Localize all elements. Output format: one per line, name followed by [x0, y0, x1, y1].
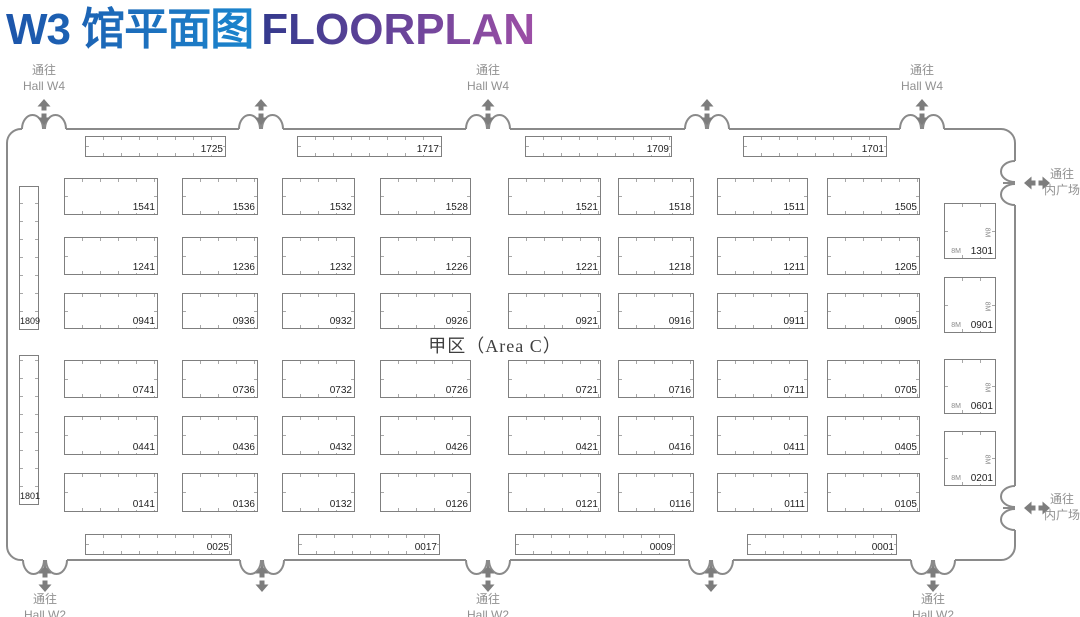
booth-number: 1701 — [860, 144, 884, 155]
exit-label-hall-w2: 通往Hall W2 — [893, 592, 973, 617]
exit-label-hall-w2: 通往Hall W2 — [5, 592, 85, 617]
booth-number: 1717 — [415, 144, 439, 155]
booth-1725: 1725 — [85, 136, 226, 157]
exit-label-line: 通往 — [893, 592, 973, 608]
booth-1236: 1236 — [182, 237, 258, 275]
double-arrow-vertical-icon — [700, 99, 714, 125]
booth-0916: 0916 — [618, 293, 694, 329]
exit-label-inner-plaza: 通往内广场 — [1022, 492, 1080, 523]
booth-number: 0721 — [574, 385, 598, 396]
booth-0601: 06018M8M — [944, 359, 996, 414]
booth-number: 0411 — [781, 442, 805, 453]
booth-number: 0932 — [328, 316, 352, 327]
booth-number: 1232 — [328, 262, 352, 273]
booth-0921: 0921 — [508, 293, 601, 329]
booth-0126: 0126 — [380, 473, 471, 512]
floorplan-page: W3 馆平面图FLOORPLAN 甲区（Area C） 154115361532… — [0, 0, 1080, 617]
exit-label-line: Hall W4 — [882, 79, 962, 95]
booth-1809: 1809 — [19, 186, 39, 330]
booth-number: 0201 — [969, 473, 993, 484]
booth-number: 1205 — [893, 262, 917, 273]
booth-number: 0736 — [231, 385, 255, 396]
booth-0416: 0416 — [618, 416, 694, 455]
booth-0736: 0736 — [182, 360, 258, 398]
dimension-label: 8M — [984, 383, 991, 393]
booth-0901: 09018M8M — [944, 277, 996, 333]
booth-1221: 1221 — [508, 237, 601, 275]
exit-label-line: 通往 — [4, 63, 84, 79]
booth-number: 0116 — [667, 499, 691, 510]
booth-number: 1236 — [231, 262, 255, 273]
exit-label-line: Hall W2 — [5, 608, 85, 617]
exit-label-line: 通往 — [1022, 167, 1080, 183]
area-label: 甲区（Area C） — [400, 332, 590, 358]
booth-number: 0905 — [893, 316, 917, 327]
double-arrow-vertical-icon — [704, 566, 718, 592]
booth-number: 1505 — [893, 202, 917, 213]
booth-0932: 0932 — [282, 293, 355, 329]
booth-0136: 0136 — [182, 473, 258, 512]
booth-1518: 1518 — [618, 178, 694, 215]
booth-0705: 0705 — [827, 360, 920, 398]
exit-label-line: 通往 — [1022, 492, 1080, 508]
booth-1717: 1717 — [297, 136, 442, 157]
booth-number: 1528 — [444, 202, 468, 213]
exit-label-line: Hall W2 — [893, 608, 973, 617]
booth-number: 0105 — [893, 499, 917, 510]
booth-1301: 13018M8M — [944, 203, 996, 259]
booth-number: 1709 — [645, 144, 669, 155]
double-arrow-vertical-icon — [254, 99, 268, 125]
booth-number: 1218 — [667, 262, 691, 273]
exit-label-line: Hall W4 — [4, 79, 84, 95]
booth-0936: 0936 — [182, 293, 258, 329]
double-arrow-vertical-icon — [926, 566, 940, 592]
booth-0432: 0432 — [282, 416, 355, 455]
booth-1226: 1226 — [380, 237, 471, 275]
booth-0905: 0905 — [827, 293, 920, 329]
dimension-label: 8M — [951, 248, 961, 255]
booth-number: 1521 — [574, 202, 598, 213]
booth-number: 0009 — [648, 542, 672, 553]
booth-number: 0426 — [444, 442, 468, 453]
booth-number: 0416 — [667, 442, 691, 453]
booth-number: 0741 — [131, 385, 155, 396]
booth-number: 0136 — [231, 499, 255, 510]
exit-label-inner-plaza: 通往内广场 — [1022, 167, 1080, 198]
booth-number: 0436 — [231, 442, 255, 453]
booth-1709: 1709 — [525, 136, 672, 157]
floorplan: 甲区（Area C） 15411536153215281521151815111… — [0, 0, 1080, 617]
booth-0132: 0132 — [282, 473, 355, 512]
booth-0732: 0732 — [282, 360, 355, 398]
booth-number: 0132 — [328, 499, 352, 510]
booth-0405: 0405 — [827, 416, 920, 455]
dimension-label: 8M — [951, 475, 961, 482]
booth-0411: 0411 — [717, 416, 808, 455]
dimension-label: 8M — [984, 455, 991, 465]
dimension-label: 8M — [951, 403, 961, 410]
booth-number: 0705 — [893, 385, 917, 396]
booth-0716: 0716 — [618, 360, 694, 398]
booth-number: 0421 — [574, 442, 598, 453]
booth-number: 0921 — [574, 316, 598, 327]
booth-number: 0941 — [131, 316, 155, 327]
booth-0441: 0441 — [64, 416, 158, 455]
booth-1541: 1541 — [64, 178, 158, 215]
booth-number: 0911 — [781, 316, 805, 327]
booth-1701: 1701 — [743, 136, 887, 157]
exit-label-hall-w4: 通往Hall W4 — [882, 63, 962, 94]
booth-number: 1532 — [328, 202, 352, 213]
exit-label-line: Hall W4 — [448, 79, 528, 95]
booth-1218: 1218 — [618, 237, 694, 275]
dimension-label: 8M — [984, 301, 991, 311]
booth-number: 0001 — [870, 542, 894, 553]
booth-1241: 1241 — [64, 237, 158, 275]
exit-label-line: 内广场 — [1022, 183, 1080, 199]
booth-number: 0916 — [667, 316, 691, 327]
booth-1528: 1528 — [380, 178, 471, 215]
booth-number: 0732 — [328, 385, 352, 396]
booth-number: 1801 — [20, 492, 38, 502]
exit-label-line: Hall W2 — [448, 608, 528, 617]
booth-0116: 0116 — [618, 473, 694, 512]
booth-0436: 0436 — [182, 416, 258, 455]
booth-0017: 0017 — [298, 534, 440, 555]
booth-number: 0936 — [231, 316, 255, 327]
exit-label-hall-w4: 通往Hall W4 — [448, 63, 528, 94]
booth-1232: 1232 — [282, 237, 355, 275]
dimension-label: 8M — [951, 322, 961, 329]
booth-number: 0025 — [205, 542, 229, 553]
booth-0721: 0721 — [508, 360, 601, 398]
booth-number: 0726 — [444, 385, 468, 396]
booth-number: 1536 — [231, 202, 255, 213]
booth-1536: 1536 — [182, 178, 258, 215]
double-arrow-vertical-icon — [481, 99, 495, 125]
booth-number: 1301 — [969, 246, 993, 257]
booth-0426: 0426 — [380, 416, 471, 455]
double-arrow-vertical-icon — [38, 566, 52, 592]
booth-0926: 0926 — [380, 293, 471, 329]
booth-number: 0926 — [444, 316, 468, 327]
booth-0421: 0421 — [508, 416, 601, 455]
booth-number: 0121 — [574, 499, 598, 510]
booth-number: 1241 — [131, 262, 155, 273]
double-arrow-vertical-icon — [915, 99, 929, 125]
booth-number: 0141 — [131, 499, 155, 510]
booth-1801: 1801 — [19, 355, 39, 505]
booth-0105: 0105 — [827, 473, 920, 512]
booth-number: 1518 — [667, 202, 691, 213]
booth-number: 0441 — [131, 442, 155, 453]
booth-number: 1541 — [131, 202, 155, 213]
booth-1505: 1505 — [827, 178, 920, 215]
booth-0201: 02018M8M — [944, 431, 996, 486]
exit-label-line: 通往 — [448, 592, 528, 608]
exit-label-hall-w2: 通往Hall W2 — [448, 592, 528, 617]
booth-number: 1221 — [574, 262, 598, 273]
exit-label-line: 通往 — [5, 592, 85, 608]
double-arrow-vertical-icon — [481, 566, 495, 592]
dimension-label: 8M — [984, 227, 991, 237]
booth-number: 0017 — [413, 542, 437, 553]
booth-number: 1511 — [781, 202, 805, 213]
double-arrow-vertical-icon — [37, 99, 51, 125]
booth-0941: 0941 — [64, 293, 158, 329]
booth-number: 0432 — [328, 442, 352, 453]
booth-number: 0901 — [969, 320, 993, 331]
booth-0111: 0111 — [717, 473, 808, 512]
booth-0009: 0009 — [515, 534, 675, 555]
booth-0141: 0141 — [64, 473, 158, 512]
booth-0711: 0711 — [717, 360, 808, 398]
booth-0025: 0025 — [85, 534, 232, 555]
exit-label-line: 通往 — [882, 63, 962, 79]
booth-number: 0711 — [781, 385, 805, 396]
booth-1532: 1532 — [282, 178, 355, 215]
booth-0741: 0741 — [64, 360, 158, 398]
exit-label-line: 内广场 — [1022, 508, 1080, 524]
booth-number: 1809 — [20, 317, 38, 327]
booth-number: 1211 — [781, 262, 805, 273]
booth-number: 1725 — [199, 144, 223, 155]
booth-0001: 0001 — [747, 534, 897, 555]
booth-0726: 0726 — [380, 360, 471, 398]
booth-1521: 1521 — [508, 178, 601, 215]
booth-number: 0716 — [667, 385, 691, 396]
booth-number: 0111 — [782, 499, 805, 510]
double-arrow-vertical-icon — [255, 566, 269, 592]
booth-1511: 1511 — [717, 178, 808, 215]
booth-number: 0405 — [893, 442, 917, 453]
booth-number: 1226 — [444, 262, 468, 273]
exit-label-line: 通往 — [448, 63, 528, 79]
booth-number: 0601 — [969, 401, 993, 412]
exit-label-hall-w4: 通往Hall W4 — [4, 63, 84, 94]
booth-1211: 1211 — [717, 237, 808, 275]
booth-number: 0126 — [444, 499, 468, 510]
booth-0121: 0121 — [508, 473, 601, 512]
booth-1205: 1205 — [827, 237, 920, 275]
booth-0911: 0911 — [717, 293, 808, 329]
